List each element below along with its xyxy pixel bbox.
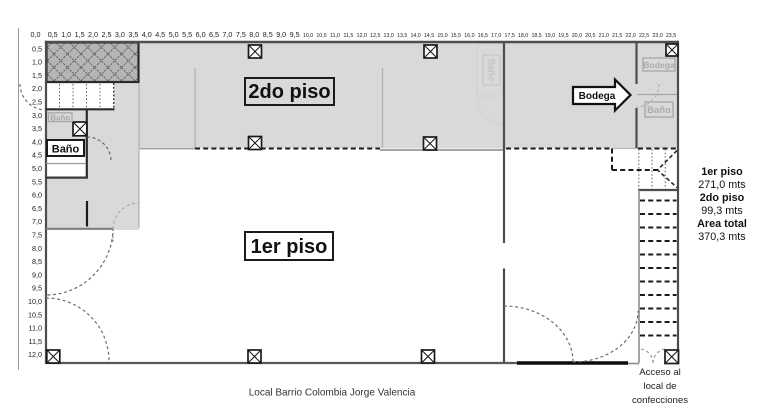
svg-text:6,0: 6,0 (32, 191, 42, 200)
svg-text:7,0: 7,0 (222, 30, 232, 39)
svg-text:9,5: 9,5 (32, 284, 42, 293)
svg-text:7,5: 7,5 (32, 231, 42, 240)
svg-text:14,5: 14,5 (424, 33, 434, 39)
svg-text:21,5: 21,5 (612, 33, 622, 39)
svg-text:2,0: 2,0 (88, 30, 98, 39)
svg-text:3,5: 3,5 (32, 124, 42, 133)
svg-text:3,0: 3,0 (115, 30, 125, 39)
svg-text:5,5: 5,5 (32, 177, 42, 186)
svg-text:8,5: 8,5 (32, 257, 42, 266)
svg-text:Local Barrio Colombia Jorge Va: Local Barrio Colombia Jorge Valencia (249, 387, 416, 398)
svg-text:Baño: Baño (50, 113, 70, 122)
svg-text:1,5: 1,5 (32, 71, 42, 80)
svg-text:7,0: 7,0 (32, 217, 42, 226)
svg-text:11,5: 11,5 (29, 337, 42, 346)
svg-text:16,5: 16,5 (478, 33, 488, 39)
svg-text:13,5: 13,5 (397, 33, 407, 39)
svg-text:confecciones: confecciones (632, 395, 688, 406)
svg-text:12,0: 12,0 (357, 33, 367, 39)
svg-text:99,3 mts: 99,3 mts (701, 205, 743, 217)
svg-text:10,5: 10,5 (28, 310, 42, 319)
svg-text:8,5: 8,5 (263, 30, 273, 39)
svg-text:4,5: 4,5 (32, 151, 42, 160)
svg-text:5,0: 5,0 (169, 30, 179, 39)
svg-text:10,0: 10,0 (28, 297, 42, 306)
svg-text:5,5: 5,5 (182, 30, 192, 39)
svg-text:6,0: 6,0 (196, 30, 206, 39)
svg-text:9,0: 9,0 (276, 30, 286, 39)
svg-text:22,0: 22,0 (625, 33, 635, 39)
svg-text:23,0: 23,0 (652, 33, 662, 39)
svg-text:271,0 mts: 271,0 mts (698, 179, 746, 191)
svg-text:18,5: 18,5 (531, 33, 541, 39)
svg-text:8,0: 8,0 (249, 30, 259, 39)
svg-text:1,5: 1,5 (75, 30, 85, 39)
svg-text:Baño: Baño (52, 144, 80, 156)
svg-text:14,0: 14,0 (410, 33, 420, 39)
svg-text:Area total: Area total (697, 218, 747, 230)
svg-text:1er piso: 1er piso (251, 236, 328, 258)
svg-text:4,0: 4,0 (32, 137, 42, 146)
svg-text:8,0: 8,0 (32, 244, 42, 253)
svg-text:Bodega: Bodega (579, 91, 616, 102)
svg-text:1,0: 1,0 (32, 58, 42, 67)
svg-text:15,0: 15,0 (437, 33, 447, 39)
svg-text:11,0: 11,0 (330, 33, 340, 39)
svg-text:4,5: 4,5 (155, 30, 165, 39)
svg-text:2,0: 2,0 (32, 84, 42, 93)
svg-text:21,0: 21,0 (599, 33, 609, 39)
svg-text:local de: local de (643, 381, 676, 392)
svg-text:15,5: 15,5 (451, 33, 461, 39)
svg-text:6,5: 6,5 (209, 30, 219, 39)
svg-text:0,5: 0,5 (32, 44, 42, 53)
svg-text:2do piso: 2do piso (700, 192, 745, 204)
svg-text:19,0: 19,0 (545, 33, 555, 39)
svg-text:3,5: 3,5 (128, 30, 138, 39)
svg-text:4,0: 4,0 (142, 30, 152, 39)
svg-text:23,5: 23,5 (666, 33, 676, 39)
svg-text:Bodega: Bodega (643, 60, 674, 70)
svg-text:13,0: 13,0 (384, 33, 394, 39)
svg-text:17,0: 17,0 (491, 33, 501, 39)
svg-text:11,5: 11,5 (343, 33, 353, 39)
svg-text:22,5: 22,5 (639, 33, 649, 39)
svg-text:16,0: 16,0 (464, 33, 474, 39)
svg-text:5,0: 5,0 (32, 164, 42, 173)
svg-text:11,0: 11,0 (29, 324, 42, 333)
svg-text:20,0: 20,0 (572, 33, 582, 39)
svg-text:0,0: 0,0 (31, 30, 41, 39)
svg-text:2,5: 2,5 (32, 98, 42, 107)
svg-text:18,0: 18,0 (518, 33, 528, 39)
svg-text:2do piso: 2do piso (248, 81, 330, 103)
svg-text:20,5: 20,5 (585, 33, 595, 39)
svg-text:9,0: 9,0 (32, 270, 42, 279)
svg-text:1,0: 1,0 (61, 30, 71, 39)
svg-text:12,5: 12,5 (370, 33, 380, 39)
svg-text:12,0: 12,0 (28, 350, 42, 359)
svg-text:Baño: Baño (487, 59, 497, 82)
svg-text:10,0: 10,0 (303, 33, 313, 39)
svg-text:1er piso: 1er piso (701, 166, 743, 178)
svg-text:19,5: 19,5 (558, 33, 568, 39)
svg-text:17,5: 17,5 (505, 33, 515, 39)
svg-text:2,5: 2,5 (102, 30, 112, 39)
svg-text:Baño: Baño (647, 105, 671, 116)
svg-text:9,5: 9,5 (290, 30, 300, 39)
svg-text:0,5: 0,5 (48, 30, 58, 39)
svg-text:370,3 mts: 370,3 mts (698, 231, 746, 243)
svg-text:3,0: 3,0 (32, 111, 42, 120)
svg-text:10,5: 10,5 (316, 33, 326, 39)
svg-text:6,5: 6,5 (32, 204, 42, 213)
svg-text:Acceso al: Acceso al (639, 367, 681, 378)
svg-text:7,5: 7,5 (236, 30, 246, 39)
